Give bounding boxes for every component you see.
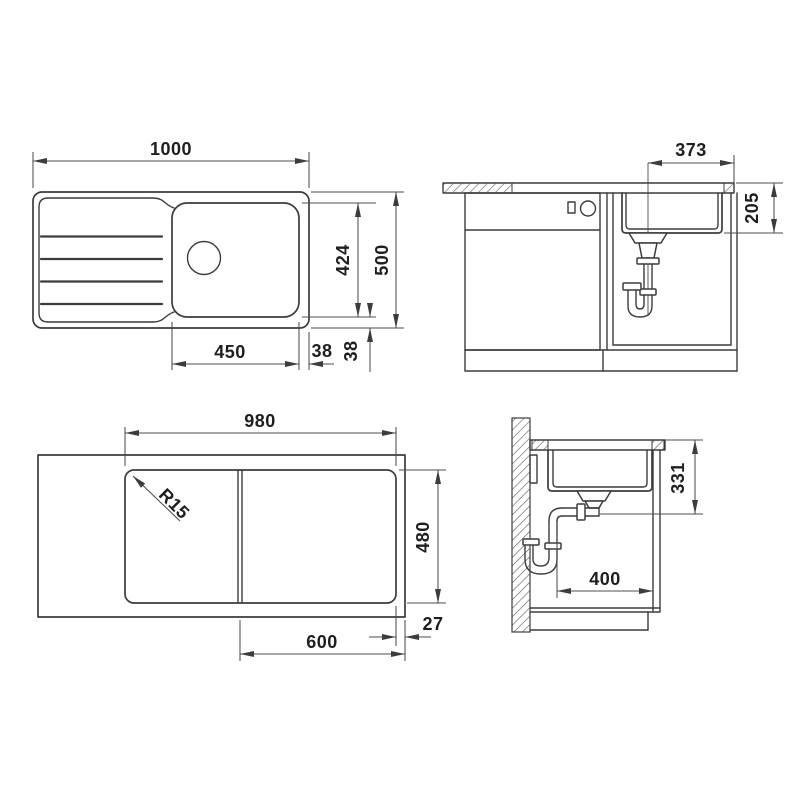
cutout-divider	[238, 470, 242, 603]
sink-installation-drawing: 1000 424 500 450 38 38	[0, 0, 800, 800]
drain-hole	[188, 242, 221, 275]
dim-outlet-height: 331	[668, 462, 688, 494]
drain-trap-front	[623, 233, 667, 317]
side-section-view: 331 400	[512, 418, 703, 632]
countertop-side-hatch-left	[532, 440, 548, 450]
dim-bowl-depth: 205	[742, 192, 762, 224]
dim-overall-depth: 500	[372, 244, 392, 276]
wall-batten	[530, 455, 537, 483]
dishwasher-cabinet	[465, 193, 600, 350]
dim-front-gap: 38	[341, 340, 361, 361]
front-section-view: 373 205	[443, 140, 783, 371]
wall	[512, 418, 530, 632]
dim-cutout-width: 980	[244, 411, 276, 431]
bowl-side-section	[548, 450, 652, 491]
plan-view: 1000 424 500 450 38 38	[33, 139, 404, 372]
dim-corner-radius: R15	[155, 484, 194, 523]
drainboard-grooves	[41, 237, 162, 305]
dim-bowl-width: 450	[214, 342, 246, 362]
countertop-hatch-right	[724, 183, 734, 193]
countertop-side-hatch-right	[652, 440, 664, 450]
dishwasher-dial-icon	[581, 201, 596, 216]
drain-trap-side	[523, 491, 611, 574]
dishwasher-button-icon	[568, 202, 575, 213]
dim-bowl-span: 424	[333, 244, 353, 276]
sink-bowl	[172, 203, 299, 317]
drainboard-transition-bottom	[152, 312, 174, 322]
drainboard-transition-top	[152, 198, 174, 208]
dim-cabinet-width: 600	[306, 632, 338, 652]
dim-drain-offset: 373	[675, 140, 707, 160]
countertop-hatch-left	[443, 183, 512, 193]
dim-edge-offset: 27	[422, 614, 443, 634]
dim-outlet-depth: 400	[589, 569, 621, 589]
bowl-section	[622, 193, 722, 233]
dim-side-gap: 38	[311, 341, 332, 361]
dim-cutout-depth: 480	[413, 521, 433, 553]
dim-overall-width: 1000	[150, 139, 192, 159]
plinth	[465, 350, 737, 371]
cutout-view: 980 R15 480 600 27	[38, 411, 446, 661]
worktop-outline	[38, 455, 405, 617]
technical-drawing-canvas: 1000 424 500 450 38 38	[0, 0, 800, 800]
countertop-side	[530, 440, 665, 450]
